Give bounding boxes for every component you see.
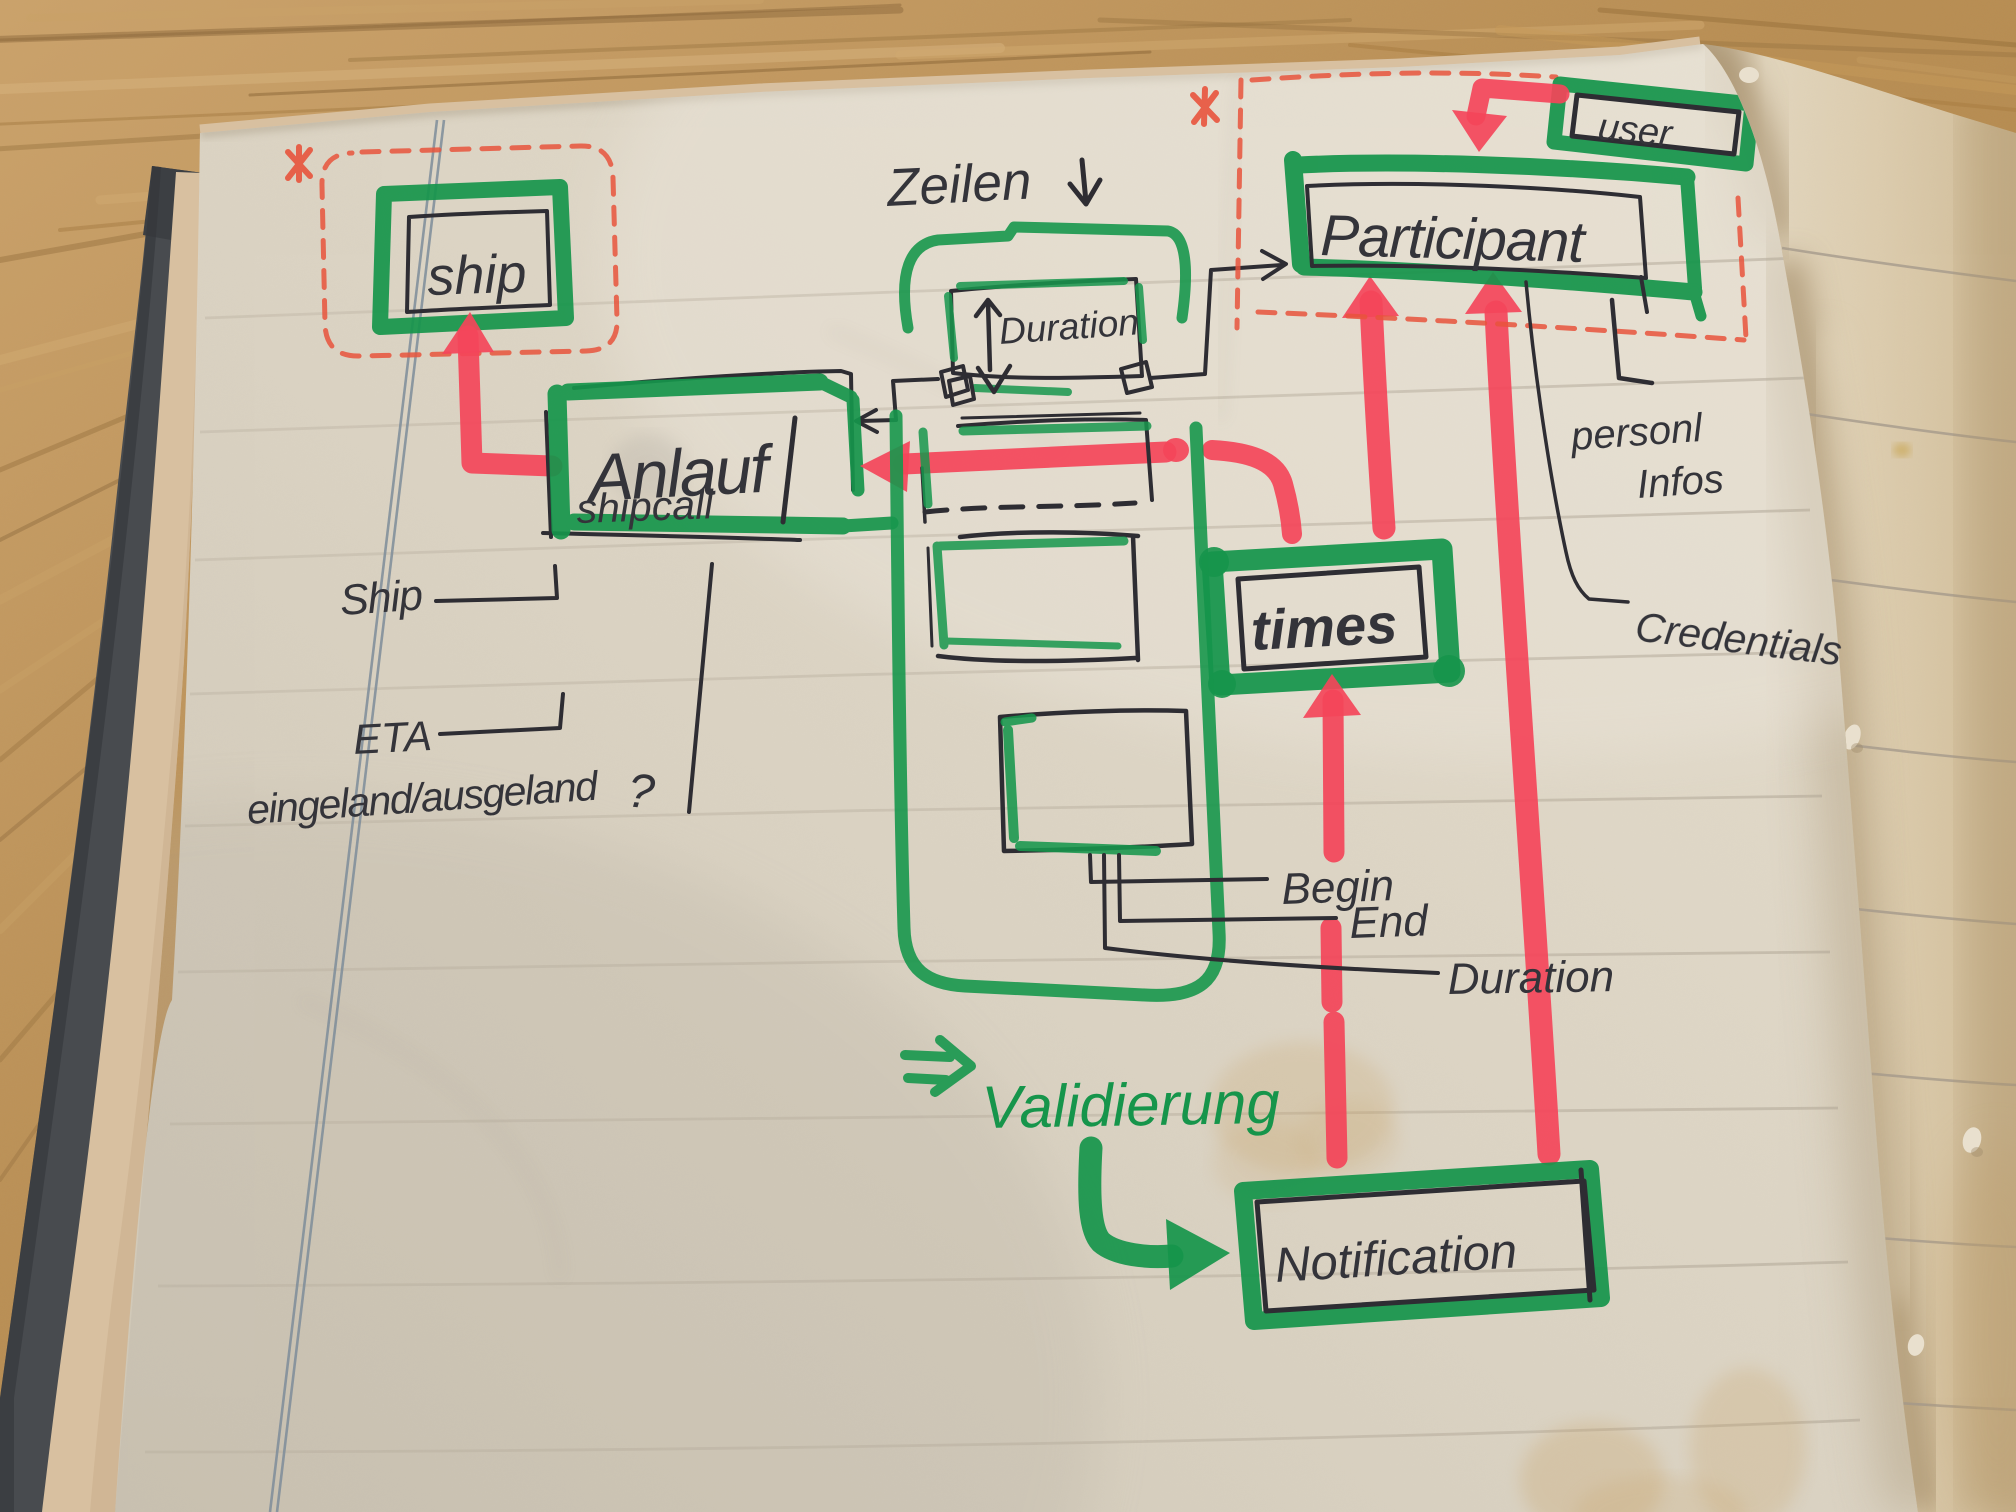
- svg-text:user: user: [1596, 106, 1675, 156]
- svg-text:Duration: Duration: [1447, 952, 1614, 1004]
- svg-text:Ship: Ship: [338, 571, 423, 625]
- svg-text:ETA: ETA: [352, 712, 433, 763]
- svg-text:Participant: Participant: [1320, 203, 1589, 275]
- svg-text:times: times: [1249, 591, 1398, 662]
- svg-text:ship: ship: [426, 244, 527, 307]
- svg-text:Validierung: Validierung: [981, 1069, 1280, 1141]
- svg-text:personl: personl: [1569, 406, 1705, 459]
- svg-text:Infos: Infos: [1636, 457, 1726, 507]
- svg-text:shipcall: shipcall: [576, 481, 716, 532]
- svg-text:Zeilen: Zeilen: [884, 152, 1033, 219]
- svg-text:End: End: [1349, 896, 1430, 948]
